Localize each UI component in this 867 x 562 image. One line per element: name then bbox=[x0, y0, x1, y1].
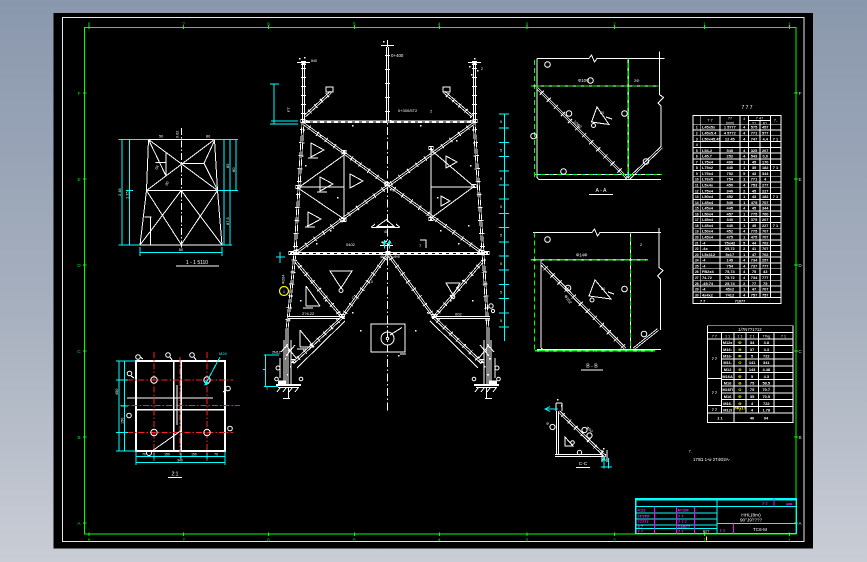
svg-text:25: 25 bbox=[695, 264, 699, 268]
svg-text:170Ω 1-w 2T4Θ2A-: 170Ω 1-w 2T4Θ2A- bbox=[693, 457, 731, 462]
svg-text:1: 1 bbox=[703, 538, 706, 543]
svg-text:15: 15 bbox=[695, 207, 699, 211]
svg-text:18: 18 bbox=[695, 224, 699, 228]
svg-text:B: B bbox=[77, 435, 80, 440]
svg-text:Θ: Θ bbox=[738, 347, 741, 352]
svg-text:475: 475 bbox=[751, 235, 758, 240]
svg-text:8: 8 bbox=[88, 22, 91, 27]
svg-text:8: 8 bbox=[696, 166, 698, 170]
svg-text:450: 450 bbox=[727, 183, 734, 188]
svg-text:141: 141 bbox=[749, 360, 756, 365]
svg-text:6: 6 bbox=[267, 538, 270, 543]
svg-text:0.02: 0.02 bbox=[176, 131, 180, 138]
svg-text:340: 340 bbox=[727, 188, 734, 193]
svg-text:5: 5 bbox=[500, 290, 502, 294]
svg-text:A - A: A - A bbox=[596, 188, 607, 194]
svg-text:182: 182 bbox=[762, 165, 769, 170]
svg-text:M11.: M11. bbox=[723, 360, 731, 365]
svg-text:29: 29 bbox=[695, 288, 699, 292]
svg-text:1.0: 1.0 bbox=[368, 280, 373, 284]
svg-text:45x2: 45x2 bbox=[725, 287, 734, 292]
svg-text:150: 150 bbox=[191, 453, 197, 457]
svg-text:10: 10 bbox=[695, 178, 699, 182]
svg-text:B: B bbox=[798, 435, 801, 440]
svg-text:257: 257 bbox=[762, 258, 769, 263]
svg-text:1 1: 1 1 bbox=[725, 334, 730, 338]
svg-text:71077: 71077 bbox=[735, 299, 746, 303]
svg-text:2: 2 bbox=[696, 132, 698, 136]
svg-text:17: 17 bbox=[695, 218, 699, 222]
svg-text:75x42: 75x42 bbox=[724, 240, 736, 245]
svg-text:1: 1 bbox=[696, 126, 698, 130]
svg-text:0402: 0402 bbox=[346, 242, 356, 247]
svg-text:T: T bbox=[266, 387, 268, 391]
svg-text:0+300/5T2: 0+300/5T2 bbox=[398, 108, 418, 113]
svg-text:5: 5 bbox=[500, 148, 502, 152]
svg-text:145: 145 bbox=[727, 258, 734, 263]
svg-text:7: 7 bbox=[182, 22, 185, 27]
svg-text:7 47: 7 47 bbox=[756, 117, 763, 121]
svg-text:702: 702 bbox=[762, 240, 769, 245]
svg-text:14: 14 bbox=[695, 201, 699, 205]
svg-text:28: 28 bbox=[695, 282, 699, 286]
svg-text:757: 757 bbox=[762, 292, 769, 297]
svg-text:3: 3 bbox=[526, 538, 529, 543]
svg-text:L50x4: L50x4 bbox=[702, 194, 714, 199]
svg-text:47: 47 bbox=[752, 287, 756, 292]
svg-text:21: 21 bbox=[695, 241, 699, 245]
svg-text:7.: 7. bbox=[689, 449, 692, 454]
svg-text:543: 543 bbox=[751, 154, 758, 159]
svg-text:340: 340 bbox=[727, 217, 734, 222]
svg-text:L75x4: L75x4 bbox=[702, 159, 714, 164]
svg-text:L45x4: L45x4 bbox=[702, 223, 714, 228]
svg-text:7 7: 7 7 bbox=[712, 407, 717, 412]
svg-text:777: 777 bbox=[762, 263, 769, 268]
svg-text:445: 445 bbox=[727, 206, 734, 211]
svg-text:7 7: 7 7 bbox=[678, 514, 684, 519]
svg-text:80: 80 bbox=[231, 167, 236, 172]
svg-text:20: 20 bbox=[695, 236, 699, 240]
svg-text:74-72: 74-72 bbox=[702, 275, 713, 280]
svg-text:775: 775 bbox=[751, 211, 758, 216]
svg-text:7 7: 7 7 bbox=[712, 334, 717, 338]
svg-text:707: 707 bbox=[762, 229, 769, 234]
svg-text:4: 4 bbox=[696, 143, 698, 147]
svg-text:440: 440 bbox=[727, 165, 734, 170]
svg-text:12 45: 12 45 bbox=[725, 136, 736, 141]
svg-text:47: 47 bbox=[752, 252, 756, 257]
svg-text:70: 70 bbox=[214, 453, 218, 457]
svg-text:70.5: 70.5 bbox=[763, 394, 771, 399]
svg-text:707: 707 bbox=[762, 246, 769, 251]
svg-text:7 7: 7 7 bbox=[638, 529, 644, 534]
svg-text:7,: 7, bbox=[774, 119, 777, 123]
svg-text:7: 7 bbox=[182, 538, 185, 543]
svg-text:702: 702 bbox=[762, 252, 769, 257]
svg-text:E: E bbox=[77, 177, 80, 182]
svg-text:M16.: M16. bbox=[723, 401, 732, 406]
svg-text:Ο: Ο bbox=[738, 387, 741, 392]
svg-text:80: 80 bbox=[601, 287, 605, 291]
svg-text:7`7: 7`7 bbox=[762, 501, 769, 506]
svg-text:Φ204: Φ204 bbox=[282, 275, 286, 284]
svg-text:L54-2: L54-2 bbox=[702, 148, 713, 153]
svg-text:737: 737 bbox=[751, 263, 758, 268]
svg-text:207: 207 bbox=[762, 217, 769, 222]
svg-text:37: 37 bbox=[750, 347, 754, 352]
svg-text:77kg: 77kg bbox=[762, 334, 770, 338]
svg-text:1: 1 bbox=[703, 22, 706, 27]
svg-text:1: 1 bbox=[283, 290, 285, 294]
svg-text:340: 340 bbox=[177, 459, 183, 463]
svg-text:1 1: 1 1 bbox=[717, 416, 723, 421]
svg-text:M12Ι: M12Ι bbox=[723, 408, 732, 413]
svg-text:7 7 7: 7 7 7 bbox=[741, 105, 752, 111]
svg-text:L75x4: L75x4 bbox=[702, 171, 714, 176]
svg-text:2Φ: 2Φ bbox=[634, 78, 639, 83]
svg-text:575: 575 bbox=[751, 125, 758, 130]
svg-text:N?2M: N?2M bbox=[678, 508, 690, 513]
svg-text:3: 3 bbox=[526, 22, 529, 27]
svg-text:-45.74: -45.74 bbox=[702, 281, 714, 286]
svg-text:344: 344 bbox=[762, 171, 769, 176]
svg-text:77: 77 bbox=[728, 117, 732, 121]
svg-text:M16: M16 bbox=[724, 381, 732, 386]
svg-text:L45x4: L45x4 bbox=[702, 217, 714, 222]
svg-text:7 7: 7 7 bbox=[707, 118, 713, 123]
svg-text:707: 707 bbox=[762, 287, 769, 292]
svg-text:252: 252 bbox=[727, 154, 734, 159]
svg-text:840: 840 bbox=[311, 59, 317, 63]
svg-text:M24: M24 bbox=[219, 351, 228, 356]
svg-text:1.15: 1.15 bbox=[125, 190, 130, 199]
svg-text:182: 182 bbox=[762, 194, 769, 199]
svg-text:4.3: 4.3 bbox=[764, 374, 770, 379]
svg-text:5: 5 bbox=[500, 205, 502, 209]
svg-text:L45.7: L45.7 bbox=[702, 154, 712, 159]
svg-text:7412: 7412 bbox=[725, 292, 734, 297]
svg-text:457: 457 bbox=[727, 211, 734, 216]
svg-text:440: 440 bbox=[727, 223, 734, 228]
svg-text:1 - 1 5110: 1 - 1 5110 bbox=[186, 260, 208, 266]
svg-text:545: 545 bbox=[727, 148, 734, 153]
svg-text:722: 722 bbox=[763, 401, 770, 406]
svg-text:FT: FT bbox=[286, 107, 291, 112]
svg-text:B - B: B - B bbox=[586, 364, 598, 370]
svg-text:707: 707 bbox=[762, 200, 769, 205]
svg-text:2: 2 bbox=[613, 22, 616, 27]
svg-text:4:22: 4:22 bbox=[638, 508, 647, 513]
svg-text:B27: B27 bbox=[703, 530, 709, 534]
svg-text:Ο: Ο bbox=[738, 360, 741, 365]
svg-text:227: 227 bbox=[762, 223, 769, 228]
svg-text:6: 6 bbox=[696, 155, 698, 159]
svg-text:2 1: 2 1 bbox=[750, 334, 755, 338]
svg-text:2.45: 2.45 bbox=[117, 187, 122, 196]
svg-text:1: 1 bbox=[788, 538, 791, 543]
svg-text:277: 277 bbox=[762, 183, 769, 188]
svg-text:722: 722 bbox=[763, 354, 770, 359]
svg-text:4x4x2: 4x4x2 bbox=[702, 292, 714, 297]
svg-text:24: 24 bbox=[695, 259, 699, 263]
svg-text:775: 775 bbox=[751, 229, 758, 234]
svg-text:22: 22 bbox=[695, 247, 699, 251]
svg-text:375: 375 bbox=[751, 217, 758, 222]
svg-text:50: 50 bbox=[179, 247, 184, 252]
svg-text:5: 5 bbox=[500, 234, 502, 238]
svg-text:40: 40 bbox=[384, 230, 388, 234]
svg-text:540: 540 bbox=[727, 200, 734, 205]
svg-text:F: F bbox=[799, 91, 802, 96]
svg-text:771: 771 bbox=[751, 131, 758, 136]
svg-text:L45x5x: L45x5x bbox=[702, 125, 716, 130]
svg-text:475: 475 bbox=[751, 200, 758, 205]
svg-text:5: 5 bbox=[500, 120, 502, 124]
svg-text:452: 452 bbox=[727, 194, 734, 199]
svg-text:L75x2: L75x2 bbox=[702, 165, 714, 170]
svg-text:7 7: 7 7 bbox=[678, 529, 684, 534]
svg-text:400: 400 bbox=[727, 159, 734, 164]
svg-text:2: 2 bbox=[481, 67, 483, 71]
svg-text:50: 50 bbox=[159, 135, 163, 139]
svg-text:1 1: 1 1 bbox=[737, 334, 742, 338]
svg-text:143: 143 bbox=[749, 367, 756, 372]
svg-text:L50x4: L50x4 bbox=[702, 211, 714, 216]
svg-text:L50x4: L50x4 bbox=[702, 229, 714, 234]
svg-text:5: 5 bbox=[500, 177, 502, 181]
svg-text:4: 4 bbox=[438, 22, 441, 27]
svg-text:7 7: 7 7 bbox=[712, 390, 717, 395]
svg-text:150: 150 bbox=[164, 453, 170, 457]
svg-text:80: 80 bbox=[600, 111, 604, 115]
svg-text:25,72: 25,72 bbox=[725, 246, 736, 251]
svg-text:207: 207 bbox=[762, 148, 769, 153]
svg-text:M12: M12 bbox=[724, 367, 732, 372]
svg-text:7 7: 7 7 bbox=[700, 299, 705, 303]
svg-text:5: 5 bbox=[500, 319, 502, 323]
svg-text:771: 771 bbox=[751, 177, 758, 182]
svg-text:Φ14Φ: Φ14Φ bbox=[576, 253, 588, 258]
svg-text:757: 757 bbox=[751, 292, 758, 297]
svg-text:30: 30 bbox=[695, 293, 699, 297]
svg-text:13: 13 bbox=[695, 195, 699, 199]
svg-text:12: 12 bbox=[695, 189, 699, 193]
svg-text:227: 227 bbox=[762, 188, 769, 193]
svg-text:3: 3 bbox=[696, 137, 698, 141]
svg-text:58.5: 58.5 bbox=[763, 381, 771, 386]
svg-text:1.78: 1.78 bbox=[763, 408, 771, 413]
svg-text:9: 9 bbox=[696, 172, 698, 176]
svg-text:1: 1 bbox=[788, 22, 791, 27]
svg-text:2: 2 bbox=[613, 538, 616, 543]
svg-text:90°J9????: 90°J9???? bbox=[740, 518, 762, 523]
svg-text:M16:: M16: bbox=[723, 347, 732, 352]
svg-text:1 1: 1 1 bbox=[720, 527, 726, 532]
svg-text:C-C: C-C bbox=[579, 461, 588, 467]
svg-text:5: 5 bbox=[353, 538, 356, 543]
svg-text:475: 475 bbox=[727, 235, 734, 240]
svg-text:734: 734 bbox=[751, 258, 758, 263]
svg-text:27: 27 bbox=[695, 276, 699, 280]
svg-text:5x17: 5x17 bbox=[725, 252, 734, 257]
svg-text:752: 752 bbox=[727, 171, 734, 176]
svg-text:Θ: Θ bbox=[738, 381, 741, 386]
svg-text:450: 450 bbox=[115, 389, 119, 395]
svg-text:L5x112: L5x112 bbox=[702, 252, 716, 257]
svg-text:7Φx1?: 7Φx1? bbox=[734, 406, 747, 411]
svg-text:L45x4: L45x4 bbox=[702, 206, 714, 211]
svg-text:7 1: 7 1 bbox=[773, 165, 779, 170]
svg-text:11: 11 bbox=[695, 184, 699, 188]
svg-text:2N12: 2N12 bbox=[272, 351, 281, 355]
svg-text:707: 707 bbox=[762, 235, 769, 240]
svg-text:5: 5 bbox=[353, 22, 356, 27]
svg-text:Θ: Θ bbox=[738, 367, 741, 372]
svg-text:-4x: -4x bbox=[702, 246, 708, 251]
svg-text:M12x: M12x bbox=[723, 340, 734, 345]
svg-text:2:1: 2:1 bbox=[172, 472, 179, 478]
svg-text:4.48: 4.48 bbox=[763, 367, 771, 372]
svg-text:6: 6 bbox=[267, 22, 270, 27]
svg-text:L45x4: L45x4 bbox=[702, 235, 714, 240]
svg-text:734: 734 bbox=[751, 275, 758, 280]
svg-text:23: 23 bbox=[695, 253, 699, 257]
svg-text:777: 777 bbox=[762, 275, 769, 280]
svg-text:77: 77 bbox=[752, 281, 756, 286]
svg-text:2?4.22: 2?4.22 bbox=[302, 311, 315, 316]
svg-text:L5x4x: L5x4x bbox=[702, 183, 714, 188]
svg-text:70: 70 bbox=[142, 453, 146, 457]
svg-text:3.8: 3.8 bbox=[764, 340, 770, 345]
svg-text:26: 26 bbox=[695, 270, 699, 274]
svg-text:7: 7 bbox=[696, 160, 698, 164]
svg-text:80: 80 bbox=[206, 135, 210, 139]
svg-text:L50x45.45: L50x45.45 bbox=[702, 136, 721, 141]
svg-text:M16: M16 bbox=[724, 394, 732, 399]
svg-text:4 5772: 4 5772 bbox=[724, 131, 737, 136]
svg-text:L45x5.4: L45x5.4 bbox=[702, 131, 717, 136]
svg-text:L75x4: L75x4 bbox=[702, 188, 714, 193]
svg-text:0,0: 0,0 bbox=[762, 154, 767, 159]
svg-text:7 1: 7 1 bbox=[781, 334, 786, 338]
svg-text:87.5: 87.5 bbox=[225, 216, 230, 225]
svg-text:25.74: 25.74 bbox=[725, 281, 736, 286]
svg-text:40: 40 bbox=[750, 416, 754, 421]
svg-text:0+400: 0+400 bbox=[391, 53, 404, 58]
svg-text:577: 577 bbox=[762, 131, 769, 136]
svg-text:753: 753 bbox=[751, 183, 758, 188]
svg-text:7ΓΥΠΓ: 7ΓΥΠΓ bbox=[638, 514, 651, 519]
svg-text:754: 754 bbox=[727, 263, 734, 268]
svg-text:L45x4: L45x4 bbox=[702, 200, 714, 205]
svg-text:E: E bbox=[798, 177, 801, 182]
svg-text:1 5777: 1 5777 bbox=[724, 125, 736, 130]
svg-text:452: 452 bbox=[727, 229, 734, 234]
svg-text:5: 5 bbox=[696, 149, 698, 153]
svg-text:1/7N7?1?12: 1/7N7?1?12 bbox=[738, 327, 762, 332]
svg-text:70.7: 70.7 bbox=[763, 387, 771, 392]
svg-text:FB2x4: FB2x4 bbox=[702, 269, 715, 274]
svg-text:F: F bbox=[78, 91, 81, 96]
svg-text:747: 747 bbox=[751, 136, 758, 141]
svg-text:341: 341 bbox=[763, 360, 770, 365]
svg-text:7 1: 7 1 bbox=[773, 194, 779, 199]
svg-text:150: 150 bbox=[121, 418, 125, 424]
svg-text:4: 4 bbox=[743, 117, 745, 121]
svg-text:5: 5 bbox=[500, 262, 502, 266]
svg-text:75,74: 75,74 bbox=[725, 269, 736, 274]
svg-text:7 1: 7 1 bbox=[773, 136, 779, 141]
svg-text:7 7: 7 7 bbox=[712, 356, 717, 361]
svg-text:457: 457 bbox=[762, 125, 769, 130]
svg-text:L76x5: L76x5 bbox=[702, 177, 714, 182]
svg-text:4.3: 4.3 bbox=[764, 347, 770, 352]
svg-text:754: 754 bbox=[727, 177, 734, 182]
svg-text:85: 85 bbox=[225, 163, 230, 168]
svg-text:8: 8 bbox=[88, 538, 91, 543]
svg-text:002: 002 bbox=[455, 312, 462, 317]
svg-text:M16A: M16A bbox=[722, 374, 733, 379]
svg-text:M16-: M16- bbox=[723, 354, 733, 359]
svg-text:75.72: 75.72 bbox=[725, 275, 736, 280]
svg-text:M16Π: M16Π bbox=[722, 387, 733, 392]
svg-text:ΘΦ: ΘΦ bbox=[786, 502, 793, 507]
svg-text:Φ: Φ bbox=[546, 422, 550, 425]
svg-text:344: 344 bbox=[762, 206, 769, 211]
svg-text:325: 325 bbox=[751, 148, 758, 153]
svg-text:170: 170 bbox=[762, 159, 769, 164]
svg-text:7 1: 7 1 bbox=[773, 223, 779, 228]
svg-text:Φ10Φ: Φ10Φ bbox=[578, 78, 590, 83]
svg-text:16: 16 bbox=[695, 212, 699, 216]
svg-text:4: 4 bbox=[438, 538, 441, 543]
svg-text:19: 19 bbox=[695, 230, 699, 234]
svg-text:TC6-M: TC6-M bbox=[753, 527, 767, 532]
svg-text:700: 700 bbox=[762, 211, 769, 216]
svg-text:4,4: 4,4 bbox=[762, 136, 768, 141]
